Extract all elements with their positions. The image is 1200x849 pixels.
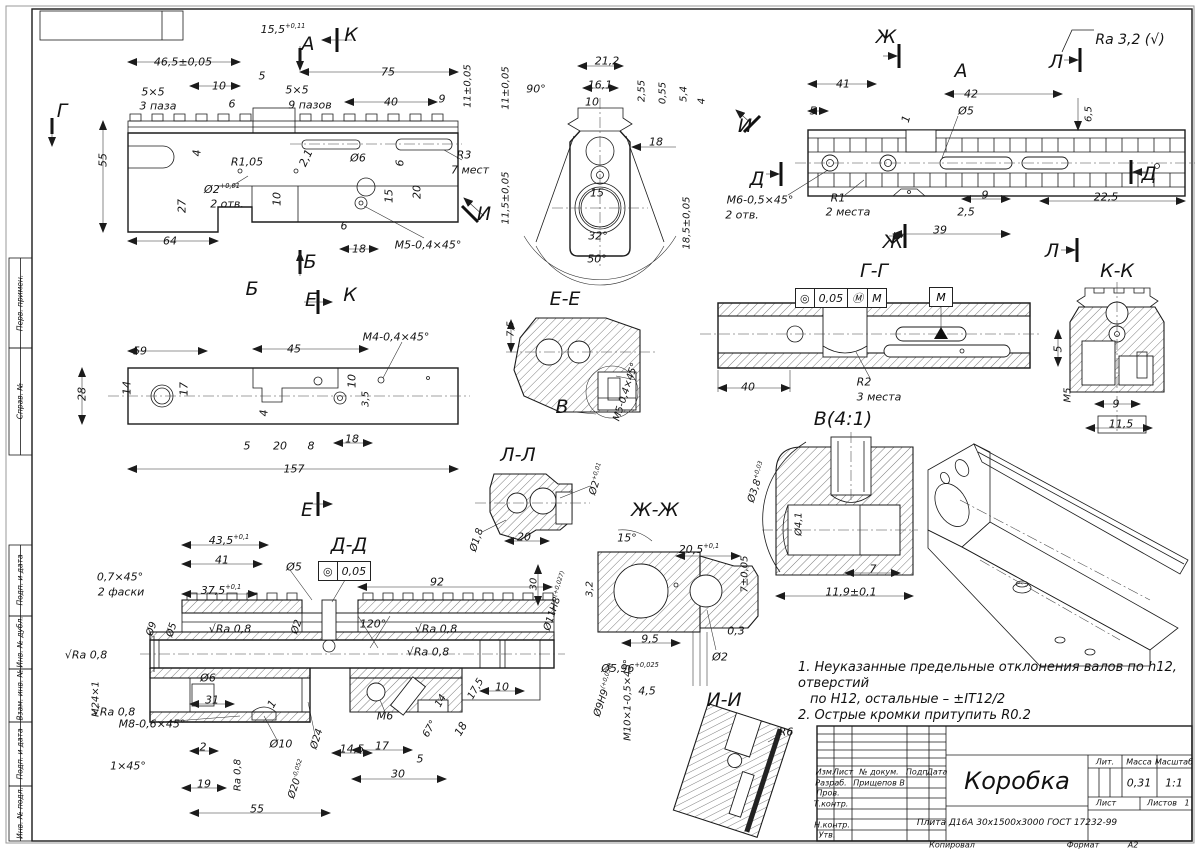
dim-label: 11,5 xyxy=(1109,418,1134,431)
dim-label: 18,5±0,05 xyxy=(682,197,693,250)
dim-label: 4 xyxy=(258,410,271,417)
dim-label: 18 xyxy=(352,243,366,256)
dim-label: 5×5 xyxy=(285,84,308,97)
tb-scale-value: 1:1 xyxy=(1165,777,1183,790)
dim-label: 9,5 xyxy=(641,633,659,646)
dim-label: √Ra 0,8 xyxy=(415,623,457,636)
drawing-title: Коробка xyxy=(964,767,1070,795)
view-label: Ж-Ж xyxy=(631,499,679,521)
dim-label: 18 xyxy=(649,136,663,149)
dim-label: 2 отв. xyxy=(725,209,759,222)
dim-label: 15° xyxy=(617,532,637,545)
technical-notes: 1. Неуказанные предельные отклонения вал… xyxy=(798,660,1198,724)
dim-label: R2 xyxy=(857,376,872,389)
dim-label: M6-0,5×45° xyxy=(727,194,794,207)
dim-label: 40 xyxy=(741,381,755,394)
stamp-inv-podl: Инв. № подл. xyxy=(16,787,25,839)
stamp-sprav-no: Справ. № xyxy=(16,383,25,420)
dim-label: 2,5 xyxy=(957,206,975,219)
dim-label: 92 xyxy=(430,576,444,589)
dim-label: 10 xyxy=(495,681,509,694)
dim-label: 45 xyxy=(287,343,301,356)
dim-label: 7 xyxy=(870,563,877,576)
dim-label: √Ra 0,8 xyxy=(209,623,251,636)
view-label: К-К xyxy=(1100,260,1134,282)
dim-label: 5 xyxy=(259,70,266,83)
dim-label: 1×45° xyxy=(110,760,146,773)
tb-mass-label: Масса xyxy=(1126,758,1152,767)
tb-col-list: Лист xyxy=(833,768,853,777)
view-label: Д-Д xyxy=(331,534,368,556)
dim-label: M10×1-0,5×45° xyxy=(623,659,634,741)
stamp-podp-data-1: Подп. и дата xyxy=(16,554,25,605)
dim-label: Ø10 xyxy=(270,738,293,751)
dim-label: 28 xyxy=(76,387,89,401)
dim-label: 20 xyxy=(273,440,287,453)
dim-label: 2,55 xyxy=(637,80,648,102)
tb-col-izm: Изм. xyxy=(816,768,835,777)
dim-label: 6,5 xyxy=(1084,106,1095,122)
dim-label: Ø4,1 xyxy=(794,512,805,536)
format-value: А2 xyxy=(1128,841,1139,849)
tolerance-frame-gg: ◎ 0,05 Ⓜ M xyxy=(795,288,887,308)
tb-role-prov: Пров. xyxy=(816,789,839,798)
tb-sheet-label: Лист xyxy=(1096,799,1116,808)
dim-label: 59 xyxy=(133,345,147,358)
dim-label: 64 xyxy=(163,235,177,248)
tb-lit-label: Лит. xyxy=(1096,758,1114,767)
dim-label: 157 xyxy=(284,463,305,476)
dim-label: 7±0,05 xyxy=(740,555,751,592)
dim-label: 10 xyxy=(212,80,226,93)
view-label: И xyxy=(477,203,491,225)
dim-label: Ø2+0,01 xyxy=(204,182,240,196)
dim-label: 40 xyxy=(384,96,398,109)
dim-label: 11±0,05 xyxy=(501,66,512,109)
dim-label: 27 xyxy=(176,199,189,213)
dim-label: 3 паза xyxy=(139,100,176,113)
dim-label: R6 xyxy=(779,726,794,739)
dim-label: 2 отв. xyxy=(210,198,244,211)
dim-label: 30 xyxy=(529,578,540,591)
view-label: Ж xyxy=(876,26,896,48)
drawing-sheet: .o{fill:none;stroke:#1b1b1b;stroke-width… xyxy=(0,0,1200,849)
stamp-podp-data-2: Подп. и дата xyxy=(16,728,25,779)
dim-label: 10 xyxy=(346,374,359,388)
dim-label: 46,5±0,05 xyxy=(154,56,212,69)
stamp-vzam-inv: Взам. инв. № xyxy=(16,670,25,721)
tolerance-frame-dd: ◎ 0,05 xyxy=(318,561,371,581)
dim-label: 20,5+0,1 xyxy=(679,542,720,556)
view-label: Л-Л xyxy=(500,444,535,466)
dim-label: Ra 0,8 xyxy=(233,759,244,791)
view-label: В xyxy=(555,396,568,418)
dim-label: 17 xyxy=(375,740,389,753)
tb-scale-label: Масштаб xyxy=(1155,758,1193,767)
dim-label: 5,4 xyxy=(679,86,690,102)
view-label: В(4:1) xyxy=(814,408,872,430)
view-label: Д xyxy=(1142,163,1157,185)
dim-label: Ø5 xyxy=(958,105,974,118)
dim-label: 15,5+0,11 xyxy=(261,22,306,36)
tb-sheets-value: 1 xyxy=(1184,799,1189,808)
dim-label: 9 xyxy=(439,93,446,106)
dim-label: 17 xyxy=(178,382,191,396)
dim-label: 7,5 xyxy=(506,321,517,337)
dim-label: 2 xyxy=(200,741,207,754)
note-line-2: по Н12, остальные – ±IT12/2 xyxy=(798,692,1198,708)
dim-label: R1 xyxy=(831,192,846,205)
dim-label: R1,05 xyxy=(231,156,263,169)
concentricity-icon: ◎ xyxy=(796,289,815,307)
dim-label: 5×5 xyxy=(141,86,164,99)
tb-role-nkontr: Н.контр. xyxy=(814,821,850,830)
tb-role-utv: Утв. xyxy=(819,831,836,840)
dim-label: M8-0,6×45° xyxy=(119,718,186,731)
note-line-1: 1. Неуказанные предельные отклонения вал… xyxy=(798,660,1198,692)
dim-label: 10 xyxy=(585,96,599,109)
view-label: Б xyxy=(303,251,316,273)
dim-label: 11±0,05 xyxy=(463,64,474,107)
dim-label: 2 места xyxy=(826,206,871,219)
dim-label: Ra 3,2 (√) xyxy=(1095,32,1164,48)
note-line-3: 2. Острые кромки притупить R0.2 xyxy=(798,708,1198,724)
view-label: Л xyxy=(1049,51,1063,73)
dim-label: R3 xyxy=(457,149,472,162)
dim-label: 75 xyxy=(381,66,395,79)
dim-label: 22,5 xyxy=(1094,191,1119,204)
dim-label: 55 xyxy=(250,803,264,816)
dim-label: √Ra 0,8 xyxy=(407,646,449,659)
dim-label: 21,2 xyxy=(595,55,620,68)
dim-label: 32° xyxy=(588,230,608,243)
material-condition-icon: Ⓜ xyxy=(848,289,868,307)
dim-label: M5 xyxy=(1063,388,1074,403)
dim-label: 11,5±0,05 xyxy=(501,172,512,225)
dim-label: 10 xyxy=(271,192,284,206)
view-label: А xyxy=(955,60,968,82)
material-spec: Плита Д16А 30х1500х3000 ГОСТ 17232-99 xyxy=(917,818,1117,828)
tb-role-razrab: Разраб. xyxy=(815,779,846,788)
dim-label: 9 xyxy=(982,189,989,202)
dim-label: 5 xyxy=(417,753,424,766)
dim-label: 0,55 xyxy=(658,82,669,104)
dim-label: 2 фаски xyxy=(98,586,144,599)
format-label: Формат xyxy=(1067,841,1099,849)
view-label: И-И xyxy=(706,689,741,711)
view-label: Г-Г xyxy=(860,260,888,282)
dim-label: 6 xyxy=(341,220,348,233)
view-label: Л xyxy=(1045,240,1059,262)
dim-label: 20 xyxy=(411,185,424,199)
dim-label: 15 xyxy=(590,187,604,200)
stamp-perv-primen: Перв. примен. xyxy=(16,275,25,331)
dim-label: 6 xyxy=(394,160,407,167)
dim-label: 3 места xyxy=(857,391,902,404)
view-label: Б xyxy=(245,278,258,300)
kopiroval-label: Копировал xyxy=(929,841,975,849)
tb-mass-value: 0,31 xyxy=(1127,777,1152,790)
dim-label: 18 xyxy=(345,433,359,446)
tb-sheets-label: Листов xyxy=(1147,799,1177,808)
dim-label: 4 xyxy=(191,150,204,157)
dim-label: 20 xyxy=(517,531,531,544)
dim-label: 14 xyxy=(121,381,134,395)
dim-label: 5 xyxy=(1052,346,1065,353)
dim-label: 14,5 xyxy=(340,743,365,756)
dim-label: 4 xyxy=(697,98,708,104)
dim-label: 55 xyxy=(97,153,110,167)
view-label: Г xyxy=(57,100,68,122)
dim-label: 0,3 xyxy=(727,625,745,638)
dim-label: 41 xyxy=(836,78,850,91)
dim-label: M5-0,4×45° xyxy=(395,239,462,252)
view-label: Е-Е xyxy=(550,288,581,310)
view-label: Д xyxy=(750,168,765,190)
dim-label: Ø6 xyxy=(200,672,216,685)
dim-label: 30 xyxy=(391,768,405,781)
dim-label: 11,9±0,1 xyxy=(825,586,876,599)
datum-ref: M xyxy=(868,289,886,307)
dim-label: 6 xyxy=(229,98,236,111)
tolerance-value: 0,05 xyxy=(338,562,371,580)
tb-role-tkontr: Т.контр. xyxy=(814,800,849,809)
dim-label: 90° xyxy=(526,83,546,96)
view-label: И xyxy=(738,115,752,137)
dim-label: 31 xyxy=(205,694,219,707)
concentricity-icon: ◎ xyxy=(319,562,338,580)
dim-label: 19 xyxy=(197,778,211,791)
dim-label: Ø5 xyxy=(286,561,302,574)
dim-label: 42 xyxy=(964,88,978,101)
tb-col-docnum: № докум. xyxy=(859,768,898,777)
view-label: Е xyxy=(305,289,317,311)
view-label: К xyxy=(344,24,358,46)
dim-label: 5 xyxy=(810,105,817,118)
dim-label: 8 xyxy=(308,440,315,453)
view-label: Ж xyxy=(883,231,903,253)
dim-label: M4-0,4×45° xyxy=(363,331,430,344)
datum-box: M xyxy=(929,287,953,307)
dim-label: 9 xyxy=(1113,398,1120,411)
dim-label: 5 xyxy=(244,440,251,453)
dim-label: 37,5+0,1 xyxy=(201,583,242,597)
dim-label: √Ra 0,8 xyxy=(65,649,107,662)
view-label: А xyxy=(302,33,315,55)
dim-label: 0,7×45° xyxy=(97,571,143,584)
dim-label: 15 xyxy=(383,189,396,203)
dim-label: 4,5 xyxy=(638,685,656,698)
dim-label: 43,5+0,1 xyxy=(209,533,250,547)
dim-label: Ø6 xyxy=(350,152,366,165)
dim-label: M6 xyxy=(377,710,394,723)
dim-label: Ø2 xyxy=(712,651,728,664)
dim-label: 120° xyxy=(360,618,387,631)
tb-name-razrab: Прищепов В xyxy=(853,779,905,788)
tolerance-value: 0,05 xyxy=(815,289,849,307)
dim-label: 7 мест xyxy=(451,164,489,177)
view-label: Е xyxy=(301,499,313,521)
dim-label: 39 xyxy=(933,224,947,237)
tb-col-data: Дата xyxy=(927,768,948,777)
stamp-inv-dubl: Инв. № дубл. xyxy=(16,616,25,667)
dim-label: 50° xyxy=(587,253,607,266)
dim-label: 3,5 xyxy=(361,391,372,407)
dim-label: 9 пазов xyxy=(288,99,332,112)
dim-label: 41 xyxy=(215,554,229,567)
dim-label: 16,1 xyxy=(588,79,613,92)
dim-label: 3,2 xyxy=(585,581,596,597)
view-label: К xyxy=(343,284,357,306)
